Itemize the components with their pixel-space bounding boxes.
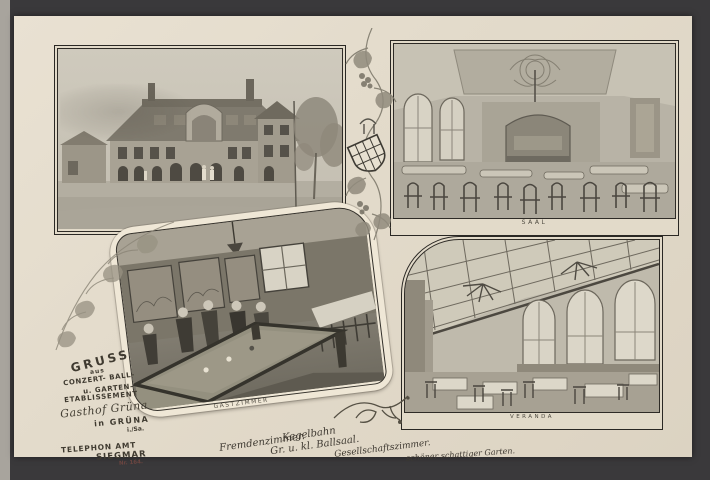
postcard: SAAL xyxy=(14,16,692,457)
flourish-ornament xyxy=(330,388,414,432)
greeting-region: i./Sa. xyxy=(127,425,145,433)
photo-saal: SAAL xyxy=(390,40,679,236)
telephone-number: Nr. 164. xyxy=(119,459,143,467)
scan-edge-strip xyxy=(0,0,10,480)
photo-veranda-image xyxy=(405,240,659,412)
foliage-decoration xyxy=(42,216,182,356)
photo-exterior-image xyxy=(58,49,342,231)
photo-saal-caption: SAAL xyxy=(394,218,675,228)
grapevine-decoration xyxy=(338,28,402,242)
photo-veranda: VERANDA xyxy=(401,236,663,430)
photo-veranda-caption: VERANDA xyxy=(405,412,659,422)
scan-background: SAAL xyxy=(0,0,710,480)
photo-saal-image xyxy=(394,44,675,218)
